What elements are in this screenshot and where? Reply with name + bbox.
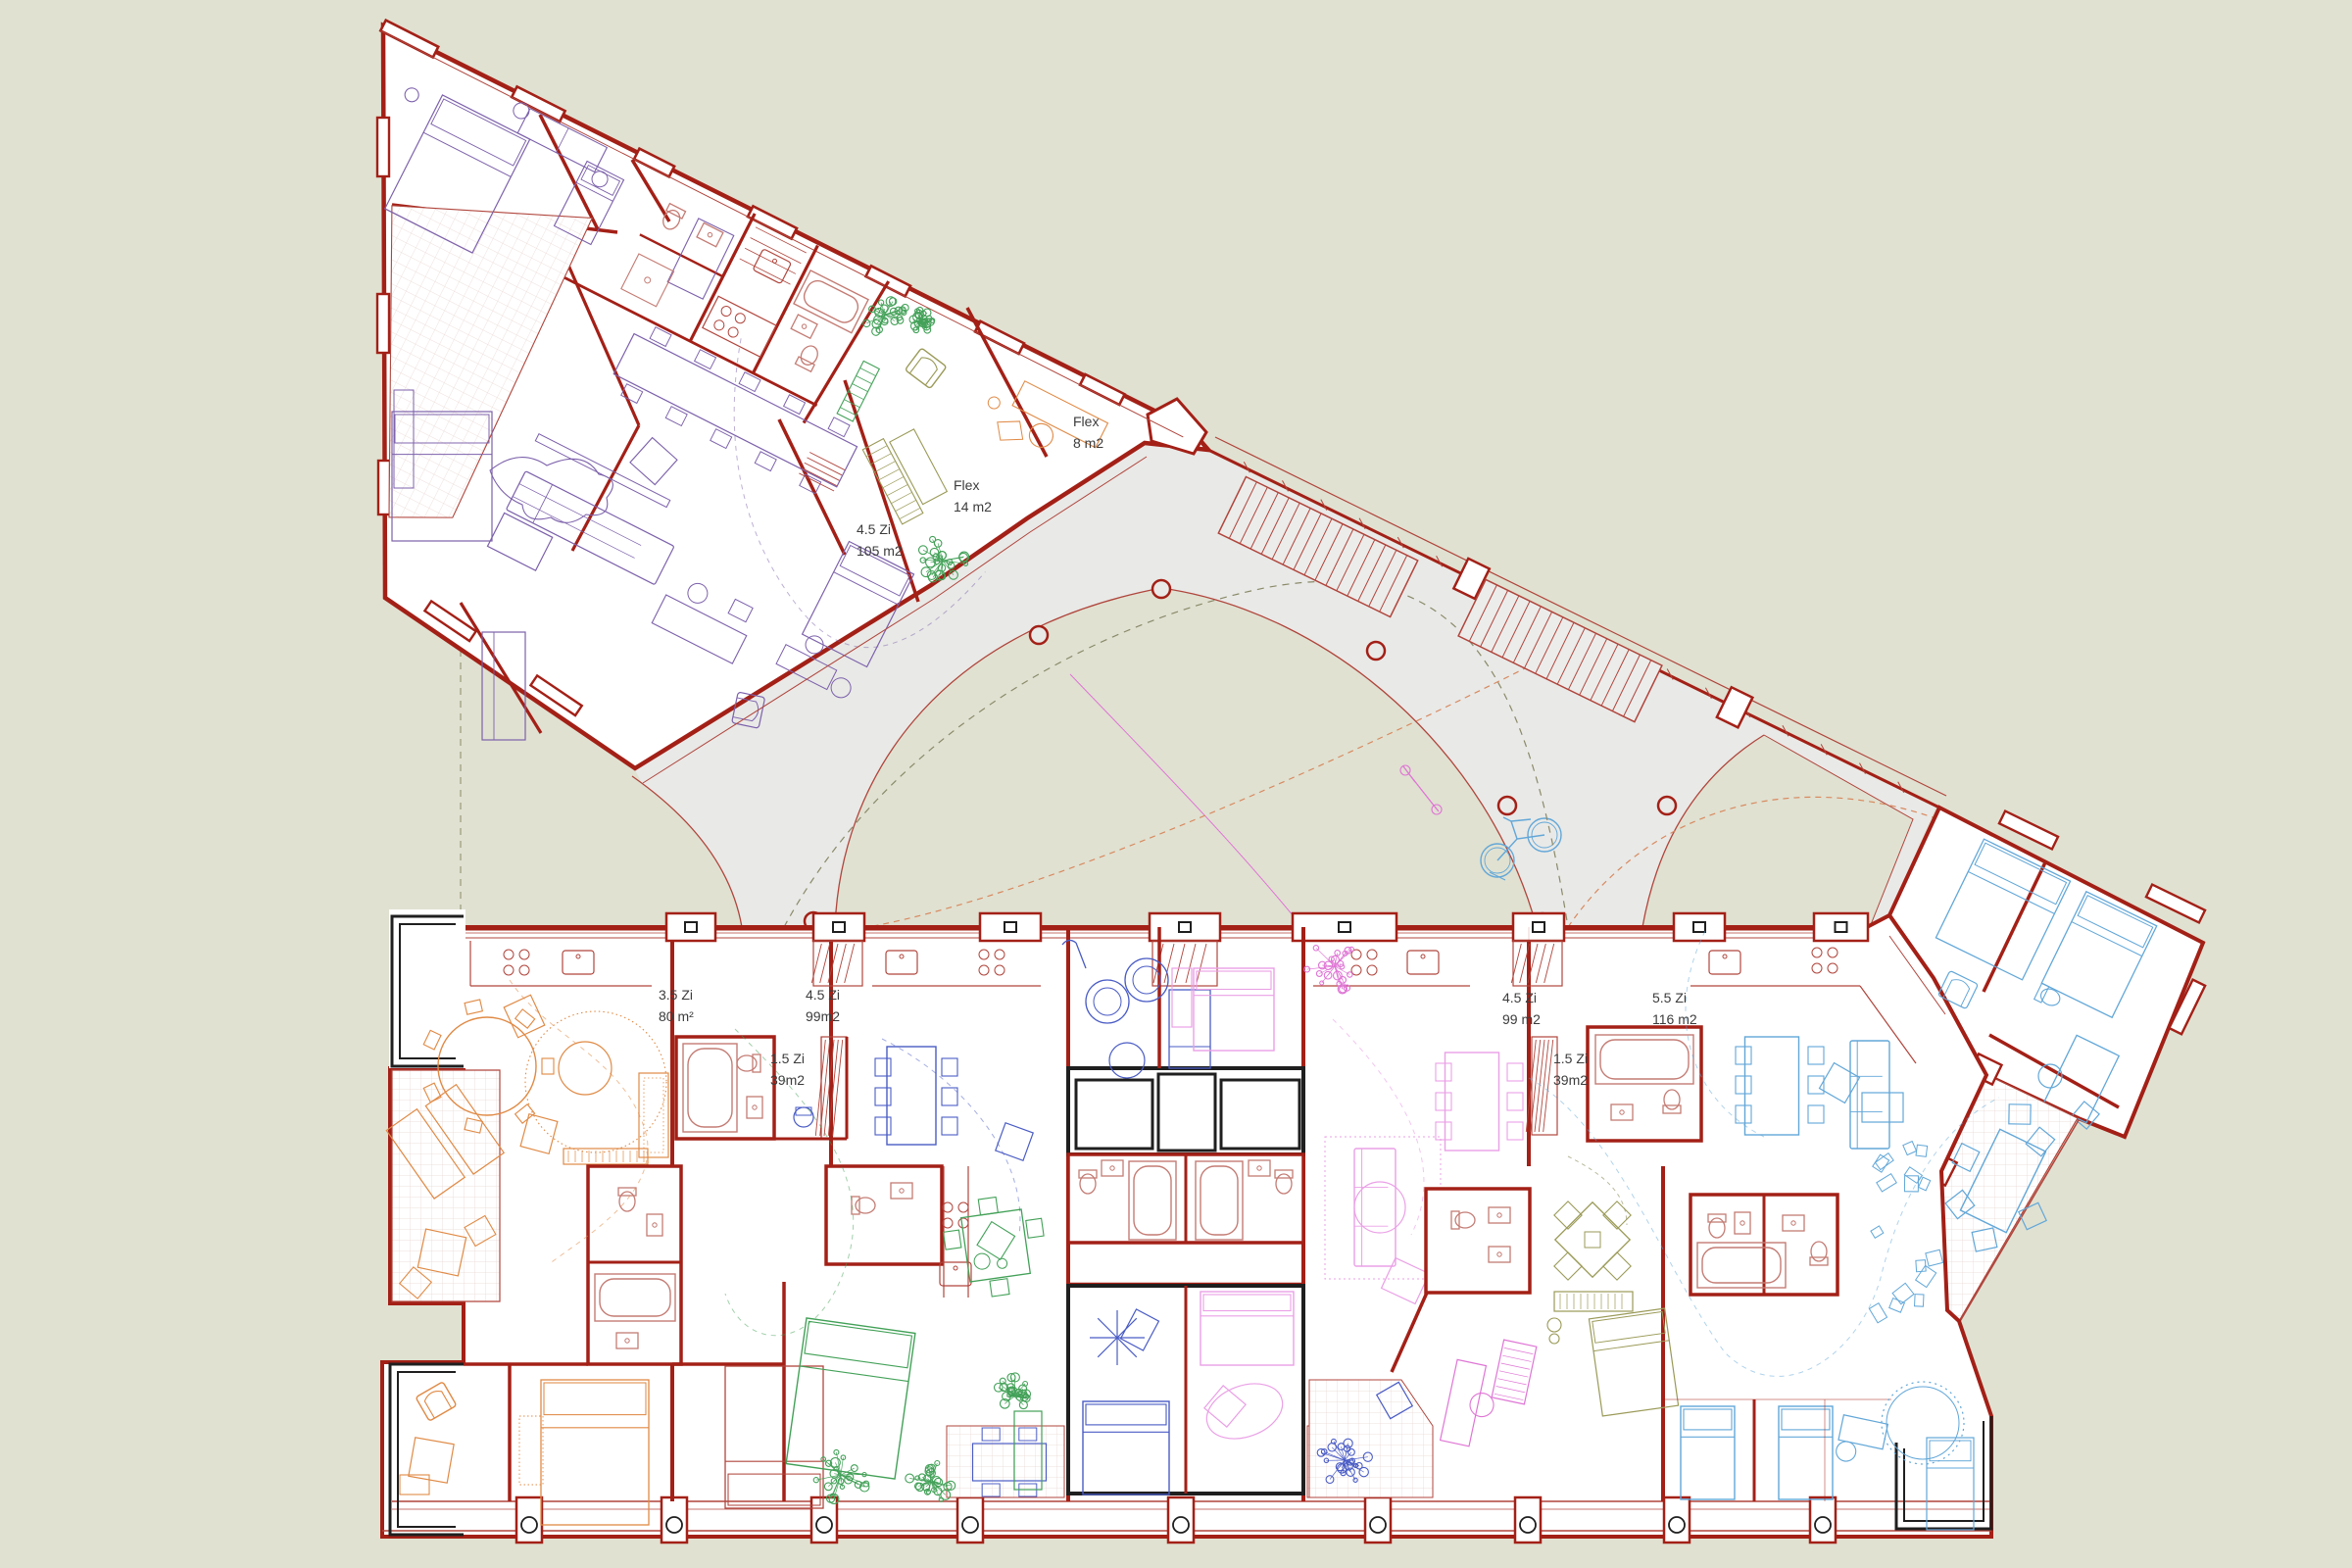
svg-text:8 m2: 8 m2 <box>1073 435 1103 451</box>
svg-text:4.5 Zi: 4.5 Zi <box>806 987 840 1003</box>
svg-text:4.5 Zi: 4.5 Zi <box>1502 990 1537 1005</box>
svg-text:99m2: 99m2 <box>806 1008 840 1024</box>
svg-text:39m2: 39m2 <box>1553 1072 1588 1088</box>
svg-text:1.5 Zi: 1.5 Zi <box>1553 1051 1588 1066</box>
svg-text:14 m2: 14 m2 <box>954 499 992 514</box>
svg-text:5.5 Zi: 5.5 Zi <box>1652 990 1687 1005</box>
svg-text:3.5 Zi: 3.5 Zi <box>659 987 693 1003</box>
svg-text:1.5 Zi: 1.5 Zi <box>770 1051 805 1066</box>
svg-text:80 m²: 80 m² <box>659 1008 694 1024</box>
svg-text:Flex: Flex <box>1073 414 1099 429</box>
svg-text:39m2: 39m2 <box>770 1072 805 1088</box>
svg-text:Flex: Flex <box>954 477 979 493</box>
svg-text:99 m2: 99 m2 <box>1502 1011 1541 1027</box>
svg-text:4.5 Zi: 4.5 Zi <box>857 521 891 537</box>
svg-text:105 m2: 105 m2 <box>857 543 903 559</box>
svg-text:116 m2: 116 m2 <box>1652 1011 1697 1027</box>
